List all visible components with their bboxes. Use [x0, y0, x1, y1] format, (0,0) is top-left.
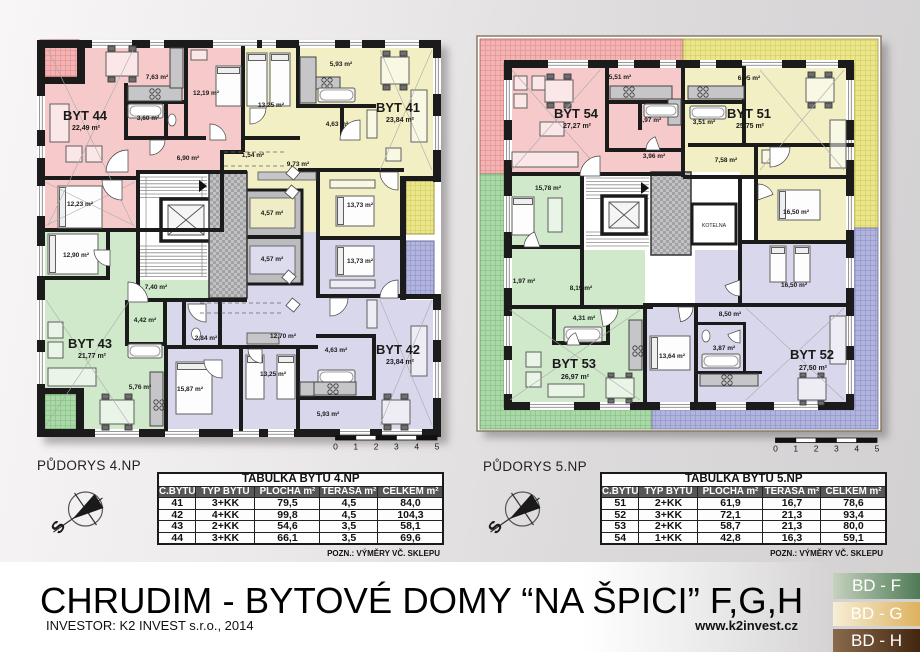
- svg-text:1: 1: [793, 444, 798, 454]
- svg-text:5,51 m²: 5,51 m²: [609, 74, 632, 81]
- svg-text:1: 1: [353, 442, 358, 452]
- svg-text:2,84 m²: 2,84 m²: [195, 335, 218, 342]
- svg-text:4,42 m²: 4,42 m²: [134, 317, 157, 324]
- svg-text:7,40 m²: 7,40 m²: [145, 284, 168, 291]
- svg-text:5: 5: [435, 442, 440, 452]
- svg-text:4,31 m²: 4,31 m²: [573, 315, 596, 322]
- svg-text:5,76 m²: 5,76 m²: [129, 384, 152, 391]
- svg-text:BYT 41: BYT 41: [376, 100, 420, 115]
- svg-text:4: 4: [854, 444, 859, 454]
- svg-text:2: 2: [814, 444, 819, 454]
- svg-text:23,84 m²: 23,84 m²: [386, 359, 415, 366]
- svg-text:3,51 m²: 3,51 m²: [693, 119, 716, 126]
- svg-text:4,57 m²: 4,57 m²: [261, 256, 284, 263]
- svg-text:4,63 m²: 4,63 m²: [325, 347, 348, 354]
- svg-text:4,63 m²: 4,63 m²: [326, 121, 349, 128]
- svg-text:13,73 m²: 13,73 m²: [347, 202, 374, 209]
- svg-text:3,96 m²: 3,96 m²: [643, 153, 666, 160]
- svg-text:13,25 m²: 13,25 m²: [258, 102, 285, 109]
- svg-text:16,50 m²: 16,50 m²: [781, 282, 808, 289]
- svg-text:3,87 m²: 3,87 m²: [713, 345, 736, 352]
- svg-text:2: 2: [374, 442, 379, 452]
- svg-text:21,77 m²: 21,77 m²: [78, 353, 107, 360]
- svg-text:1,97 m²: 1,97 m²: [513, 278, 536, 285]
- svg-text:27,27 m²: 27,27 m²: [563, 123, 592, 130]
- svg-text:1,54 m²: 1,54 m²: [242, 152, 265, 159]
- svg-text:5,93 m²: 5,93 m²: [317, 411, 340, 418]
- svg-text:8,19 m²: 8,19 m²: [570, 285, 593, 292]
- svg-text:22,49 m²: 22,49 m²: [72, 125, 101, 132]
- svg-text:13,73 m²: 13,73 m²: [347, 258, 374, 265]
- svg-text:27,50 m²: 27,50 m²: [799, 365, 828, 372]
- svg-text:16,50 m²: 16,50 m²: [783, 209, 810, 216]
- svg-text:0: 0: [773, 444, 778, 454]
- svg-text:26,97 m²: 26,97 m²: [561, 374, 590, 381]
- svg-text:15,87 m²: 15,87 m²: [177, 386, 204, 393]
- svg-text:3,60 m²: 3,60 m²: [137, 115, 160, 122]
- svg-text:15,78 m²: 15,78 m²: [535, 185, 562, 192]
- svg-text:12,23 m²: 12,23 m²: [67, 201, 94, 208]
- svg-text:3: 3: [834, 444, 839, 454]
- svg-text:6,05 m²: 6,05 m²: [738, 75, 761, 82]
- svg-text:9,73 m²: 9,73 m²: [287, 161, 310, 168]
- svg-text:S: S: [484, 517, 506, 537]
- svg-text:KOTELNA: KOTELNA: [702, 223, 727, 229]
- svg-text:BYT 42: BYT 42: [376, 342, 420, 357]
- svg-text:12,19 m²: 12,19 m²: [193, 90, 220, 97]
- svg-text:BYT 52: BYT 52: [790, 347, 834, 362]
- svg-text:6,90 m²: 6,90 m²: [177, 155, 200, 162]
- svg-text:BYT 53: BYT 53: [552, 356, 596, 371]
- svg-text:13,64 m²: 13,64 m²: [659, 353, 686, 360]
- svg-text:23,84 m²: 23,84 m²: [386, 117, 415, 124]
- svg-text:12,90 m²: 12,90 m²: [63, 252, 90, 259]
- svg-text:7,58 m²: 7,58 m²: [715, 157, 738, 164]
- svg-text:S: S: [47, 517, 69, 537]
- svg-text:25,75 m²: 25,75 m²: [736, 123, 765, 130]
- svg-text:0: 0: [333, 442, 338, 452]
- svg-text:4: 4: [414, 442, 419, 452]
- svg-text:4,97 m²: 4,97 m²: [639, 117, 662, 124]
- svg-text:BYT 44: BYT 44: [63, 108, 108, 123]
- svg-text:4,57 m²: 4,57 m²: [261, 210, 284, 217]
- svg-text:3: 3: [394, 442, 399, 452]
- svg-text:7,63 m²: 7,63 m²: [146, 74, 169, 81]
- svg-text:BYT 54: BYT 54: [554, 106, 599, 121]
- svg-text:BYT 51: BYT 51: [727, 106, 771, 121]
- svg-text:8,50 m²: 8,50 m²: [719, 311, 742, 318]
- svg-text:5: 5: [875, 444, 880, 454]
- svg-text:5,93 m²: 5,93 m²: [330, 61, 353, 68]
- svg-text:12,70 m²: 12,70 m²: [270, 333, 297, 340]
- svg-text:BYT 43: BYT 43: [68, 336, 112, 351]
- svg-text:13,25 m²: 13,25 m²: [260, 371, 287, 378]
